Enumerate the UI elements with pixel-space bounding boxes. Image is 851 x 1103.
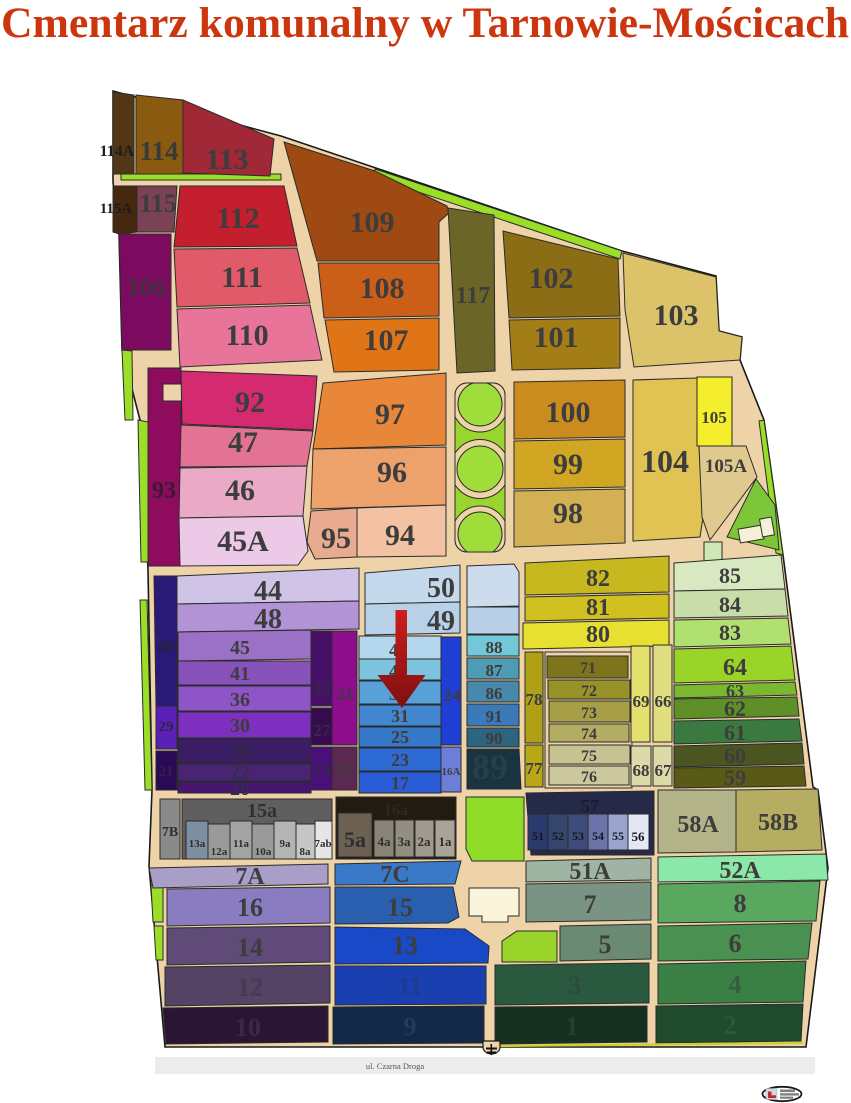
svg-text:82: 82 — [586, 566, 610, 592]
svg-text:109: 109 — [350, 206, 395, 239]
svg-text:7C: 7C — [380, 862, 409, 888]
svg-text:7A: 7A — [235, 864, 265, 890]
svg-text:12a: 12a — [211, 846, 228, 858]
svg-text:106: 106 — [127, 273, 166, 302]
svg-text:11: 11 — [398, 972, 423, 1001]
svg-text:103: 103 — [654, 299, 699, 332]
svg-text:73: 73 — [581, 705, 597, 722]
svg-text:21: 21 — [337, 685, 354, 704]
svg-text:87: 87 — [486, 661, 504, 680]
svg-text:53: 53 — [572, 829, 584, 843]
svg-text:36: 36 — [230, 689, 250, 711]
svg-text:102: 102 — [529, 262, 574, 295]
svg-text:67: 67 — [655, 761, 673, 780]
svg-text:57: 57 — [581, 796, 599, 816]
svg-text:58B: 58B — [758, 810, 798, 836]
svg-text:27: 27 — [314, 721, 332, 740]
svg-text:6: 6 — [729, 929, 742, 958]
svg-text:52A: 52A — [719, 858, 761, 884]
svg-text:4a: 4a — [378, 834, 392, 849]
svg-text:ul. Czarna Droga: ul. Czarna Droga — [366, 1061, 425, 1071]
svg-text:47: 47 — [228, 426, 258, 459]
svg-text:50: 50 — [427, 573, 455, 604]
svg-text:45A: 45A — [217, 525, 269, 558]
svg-text:55: 55 — [612, 829, 624, 843]
svg-text:88: 88 — [486, 638, 503, 657]
svg-text:54: 54 — [592, 829, 604, 843]
svg-text:5a: 5a — [344, 827, 366, 852]
svg-text:68: 68 — [633, 761, 650, 780]
svg-text:84: 84 — [719, 592, 741, 617]
svg-text:99: 99 — [553, 448, 583, 481]
svg-text:10: 10 — [235, 1013, 261, 1042]
svg-text:64: 64 — [723, 655, 747, 681]
svg-text:93: 93 — [152, 478, 176, 504]
svg-text:15: 15 — [387, 893, 413, 922]
svg-text:Cmentarz komunalny w Tarnowie-: Cmentarz komunalny w Tarnowie-Mościcach — [1, 0, 849, 47]
svg-text:113: 113 — [205, 143, 248, 176]
svg-text:12: 12 — [237, 973, 263, 1002]
svg-text:23: 23 — [391, 750, 409, 770]
svg-text:101: 101 — [534, 321, 579, 354]
svg-text:21: 21 — [337, 760, 354, 779]
svg-text:114: 114 — [139, 136, 178, 166]
svg-text:24: 24 — [444, 686, 462, 705]
svg-text:110: 110 — [225, 319, 268, 352]
svg-text:8a: 8a — [300, 846, 312, 858]
svg-text:94: 94 — [385, 519, 415, 552]
svg-text:41: 41 — [230, 663, 250, 685]
svg-text:91: 91 — [486, 707, 503, 726]
svg-text:117: 117 — [456, 283, 491, 309]
svg-text:86: 86 — [486, 684, 503, 703]
svg-text:7: 7 — [584, 890, 597, 919]
svg-text:25: 25 — [391, 727, 409, 747]
svg-text:72: 72 — [581, 683, 597, 700]
svg-text:10a: 10a — [255, 846, 272, 858]
svg-text:19: 19 — [314, 760, 331, 779]
svg-text:71: 71 — [580, 660, 596, 677]
svg-text:3a: 3a — [398, 834, 412, 849]
svg-text:81: 81 — [586, 595, 610, 621]
svg-text:105: 105 — [701, 408, 727, 427]
svg-text:92: 92 — [235, 386, 265, 419]
svg-text:13: 13 — [392, 931, 418, 960]
svg-text:45: 45 — [230, 637, 250, 659]
svg-text:2: 2 — [724, 1011, 737, 1040]
svg-text:58A: 58A — [677, 812, 719, 838]
svg-text:61: 61 — [724, 720, 746, 745]
svg-text:66: 66 — [655, 692, 672, 711]
svg-text:52: 52 — [552, 829, 564, 843]
svg-text:1: 1 — [566, 1012, 579, 1041]
svg-text:77: 77 — [526, 759, 544, 778]
svg-text:8: 8 — [734, 889, 747, 918]
svg-text:2a: 2a — [418, 834, 432, 849]
svg-text:83: 83 — [719, 620, 741, 645]
svg-text:56: 56 — [632, 829, 646, 844]
svg-text:111: 111 — [221, 261, 263, 294]
svg-text:90: 90 — [486, 729, 503, 748]
svg-text:51A: 51A — [569, 859, 611, 885]
svg-text:16a: 16a — [384, 802, 408, 819]
svg-text:16: 16 — [237, 893, 263, 922]
svg-text:28: 28 — [230, 741, 250, 763]
svg-text:74: 74 — [581, 726, 597, 743]
svg-text:29: 29 — [159, 719, 174, 735]
svg-text:20: 20 — [230, 778, 250, 800]
svg-text:40: 40 — [158, 637, 175, 656]
svg-text:75: 75 — [581, 748, 597, 765]
svg-text:16A: 16A — [442, 766, 461, 778]
svg-text:21: 21 — [159, 764, 174, 780]
svg-text:108: 108 — [360, 272, 405, 305]
svg-text:7ab: 7ab — [314, 838, 331, 850]
svg-text:115: 115 — [139, 189, 177, 218]
svg-text:35: 35 — [314, 680, 331, 699]
svg-text:30: 30 — [230, 715, 250, 737]
svg-text:14: 14 — [237, 933, 263, 962]
svg-text:89: 89 — [472, 747, 508, 787]
svg-text:9a: 9a — [280, 838, 292, 850]
svg-text:3: 3 — [569, 971, 582, 1000]
svg-text:4: 4 — [729, 970, 742, 999]
svg-text:97: 97 — [375, 398, 405, 431]
svg-text:96: 96 — [377, 456, 407, 489]
svg-text:5: 5 — [599, 930, 612, 959]
svg-text:115A: 115A — [100, 201, 133, 217]
svg-text:104: 104 — [641, 443, 689, 479]
svg-text:59: 59 — [724, 765, 746, 790]
svg-text:31: 31 — [391, 706, 409, 726]
svg-text:98: 98 — [553, 497, 583, 530]
svg-text:100: 100 — [546, 396, 591, 429]
svg-text:62: 62 — [724, 696, 746, 721]
svg-text:114A: 114A — [100, 143, 135, 160]
svg-text:17: 17 — [391, 773, 409, 793]
svg-text:9: 9 — [404, 1012, 417, 1041]
svg-text:76: 76 — [581, 769, 597, 786]
svg-text:105A: 105A — [705, 456, 748, 477]
svg-text:95: 95 — [321, 522, 351, 555]
svg-text:46: 46 — [225, 474, 255, 507]
svg-text:11a: 11a — [233, 838, 249, 850]
svg-text:85: 85 — [719, 563, 741, 588]
svg-text:1a: 1a — [439, 834, 453, 849]
svg-text:51: 51 — [532, 829, 544, 843]
svg-text:112: 112 — [216, 202, 259, 235]
svg-text:69: 69 — [633, 692, 650, 711]
svg-text:15a: 15a — [247, 800, 277, 822]
svg-text:107: 107 — [364, 324, 409, 357]
svg-text:80: 80 — [586, 622, 610, 648]
svg-text:49: 49 — [427, 606, 455, 637]
svg-text:78: 78 — [526, 690, 543, 709]
svg-text:13a: 13a — [189, 838, 206, 850]
svg-text:7B: 7B — [162, 825, 178, 840]
